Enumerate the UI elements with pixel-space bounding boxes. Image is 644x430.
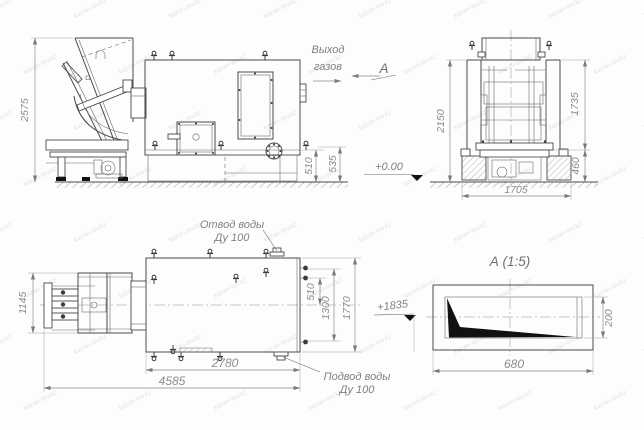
roof-valve-icon: [169, 51, 175, 60]
view-a-letter: А: [378, 61, 388, 76]
level-zero-marker: +0.00: [364, 161, 423, 181]
plan-valve-icon: [178, 352, 184, 361]
watermark-text: kazan-tev.kz: [453, 221, 488, 244]
water-inlet-label-2: Ду 100: [338, 384, 376, 396]
dim-2780: 2780: [211, 356, 239, 370]
feeder-plan: [44, 273, 146, 333]
drain-valve-icon: [218, 141, 224, 150]
water-inlet-label-1: Подвод воды: [324, 371, 391, 383]
plan-valve-icon: [263, 249, 269, 258]
dim-4585: 4585: [159, 374, 186, 388]
plan-valve-icon: [151, 249, 157, 258]
watermark-text: kazan-tev.kz: [453, 109, 488, 132]
watermark-text: kazan-tev.kz: [0, 221, 13, 244]
watermark-text: kazan-tev.kz: [118, 389, 153, 412]
gas-outlet-annotation: Выход газов: [311, 44, 344, 81]
watermark-text: kazan-tev.kz: [593, 389, 628, 412]
dim-510-plan: 510: [305, 283, 317, 301]
watermark-text: kazan-tev.kz: [498, 389, 533, 412]
foundation-block: [547, 156, 571, 180]
dim-460: 460: [570, 157, 582, 175]
plan-valve-icon: [151, 352, 157, 361]
watermark-text: kazan-tev.kz: [358, 0, 393, 20]
watermark-text: kazan-tev.kz: [73, 109, 108, 132]
dim-535: 535: [327, 155, 339, 173]
dim-1770: 1770: [341, 296, 353, 320]
watermark-text: kazan-tev.kz: [168, 221, 203, 244]
dim-200: 200: [603, 309, 615, 328]
watermark-text: kazan-tev.kz: [0, 0, 13, 20]
watermark-text: kazan-tev.kz: [213, 277, 248, 300]
watermark-text: kazan-tev.kz: [498, 53, 533, 76]
watermark-text: kazan-tev.kz: [168, 109, 203, 132]
watermark-text: kazan-tev.kz: [593, 53, 628, 76]
watermark-text: kazan-tev.kz: [73, 221, 108, 244]
plan-dimensions: 1145 2780 4585 510 1300 1770: [17, 258, 361, 392]
feeder-base: [46, 140, 128, 181]
plan-view: Отвод воды Ду 100 Подвод воды Ду 100 114…: [17, 219, 390, 396]
dim-510-side: 510: [303, 157, 315, 175]
watermark-text: kazan-tev.kz: [263, 109, 298, 132]
plan-valve-icon: [263, 268, 269, 277]
detail-view-a: А (1:5) 680 200: [426, 254, 615, 375]
dim-1300: 1300: [320, 296, 332, 320]
water-inlet: Подвод воды Ду 100: [274, 352, 390, 396]
watermark-text: kazan-tev.kz: [453, 0, 488, 20]
dim-1735: 1735: [569, 92, 581, 116]
gas-outlet-label-2: газов: [314, 61, 342, 73]
feed-tube: [131, 88, 146, 118]
watermark-text: kazan-tev.kz: [358, 221, 393, 244]
watermark-text: kazan-tev.kz: [593, 277, 628, 300]
dim-2150: 2150: [435, 109, 447, 134]
plan-valve-icon: [207, 249, 213, 258]
roof-valve-icon: [262, 51, 268, 60]
boiler-body-front: [467, 38, 560, 156]
view-a-marker: А: [352, 61, 396, 80]
door-handle: [168, 134, 180, 139]
watermark-text: kazan-tev.kz: [358, 109, 393, 132]
watermark-text: kazan-tev.kz: [0, 333, 13, 356]
dim-1145: 1145: [17, 292, 29, 315]
dim-2575: 2575: [19, 98, 31, 123]
drive-motor: [101, 161, 115, 175]
ground-hatch: [55, 183, 348, 188]
hook-glyph: [96, 51, 105, 60]
watermark-text: kazan-tev.kz: [263, 0, 298, 20]
level-1835-text: +1835: [377, 298, 410, 314]
bottom-flange: [266, 143, 282, 159]
watermark-text: kazan-tev.kz: [168, 0, 203, 20]
level-zero-text: +0.00: [375, 161, 404, 173]
watermark-text: kazan-tev.kz: [358, 333, 393, 356]
boiler-drawing-page: kazan-tev.kzkazan-tev.kzkazan-tev.kzkaza…: [0, 0, 644, 430]
watermark-text: kazan-tev.kz: [23, 389, 58, 412]
watermark-text: kazan-tev.kz: [498, 277, 533, 300]
foundation-block: [462, 156, 486, 180]
watermark-text: kazan-tev.kz: [213, 389, 248, 412]
watermark-text: kazan-tev.kz: [548, 0, 583, 20]
watermark-text: kazan-tev.kz: [23, 53, 58, 76]
drawing-canvas: kazan-tev.kzkazan-tev.kzkazan-tev.kzkaza…: [0, 0, 644, 430]
side-view: 2575 510 535: [19, 38, 348, 188]
water-outlet-label-2: Ду 100: [213, 232, 251, 244]
watermark-text: kazan-tev.kz: [403, 53, 438, 76]
watermark-text: kazan-tev.kz: [308, 389, 343, 412]
gas-outlet-stub: [300, 84, 306, 102]
gas-outlet-label-1: Выход: [311, 44, 344, 56]
dim-1705: 1705: [504, 184, 528, 196]
shoulder-valve-icon: [546, 41, 552, 50]
watermark-text: kazan-tev.kz: [73, 0, 108, 20]
drain-valve-icon: [152, 141, 158, 150]
watermark-text: kazan-tev.kz: [548, 221, 583, 244]
watermark-text: kazan-tev.kz: [403, 389, 438, 412]
tap-valve-icon: [303, 141, 309, 150]
water-outlet-label-1: Отвод воды: [200, 219, 264, 231]
watermark-text: kazan-tev.kz: [73, 333, 108, 356]
watermark-text: kazan-tev.kz: [0, 109, 13, 132]
watermark-text: kazan-tev.kz: [118, 53, 153, 76]
shoulder-valve-icon: [469, 41, 475, 50]
watermark-text: kazan-tev.kz: [263, 221, 298, 244]
watermark-text: kazan-tev.kz: [593, 165, 628, 188]
detail-title: А (1:5): [489, 254, 531, 269]
damper-wedge: [447, 298, 575, 338]
pusher-cylinder: [77, 85, 129, 111]
watermark-text: kazan-tev.kz: [23, 165, 58, 188]
dim-680: 680: [504, 357, 524, 371]
